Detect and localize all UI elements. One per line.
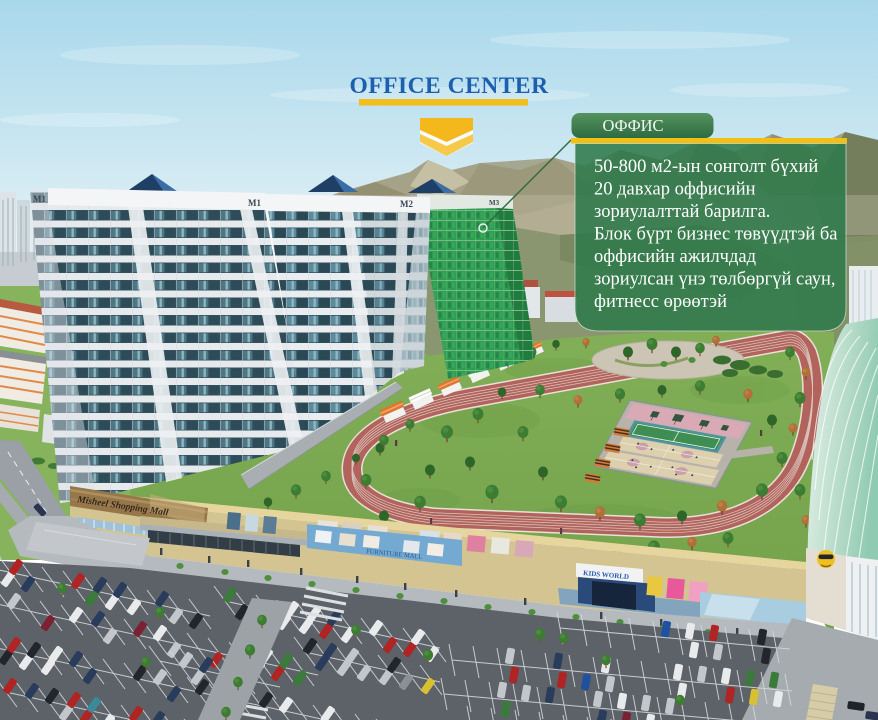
svg-text:OFFICE CENTER: OFFICE CENTER (349, 73, 549, 99)
svg-text:ОФФИС: ОФФИС (602, 116, 663, 135)
svg-text:M1: M1 (248, 198, 261, 208)
svg-text:M3: M3 (489, 199, 500, 207)
svg-text:M1: M1 (33, 194, 46, 204)
svg-text:M2: M2 (400, 199, 413, 209)
